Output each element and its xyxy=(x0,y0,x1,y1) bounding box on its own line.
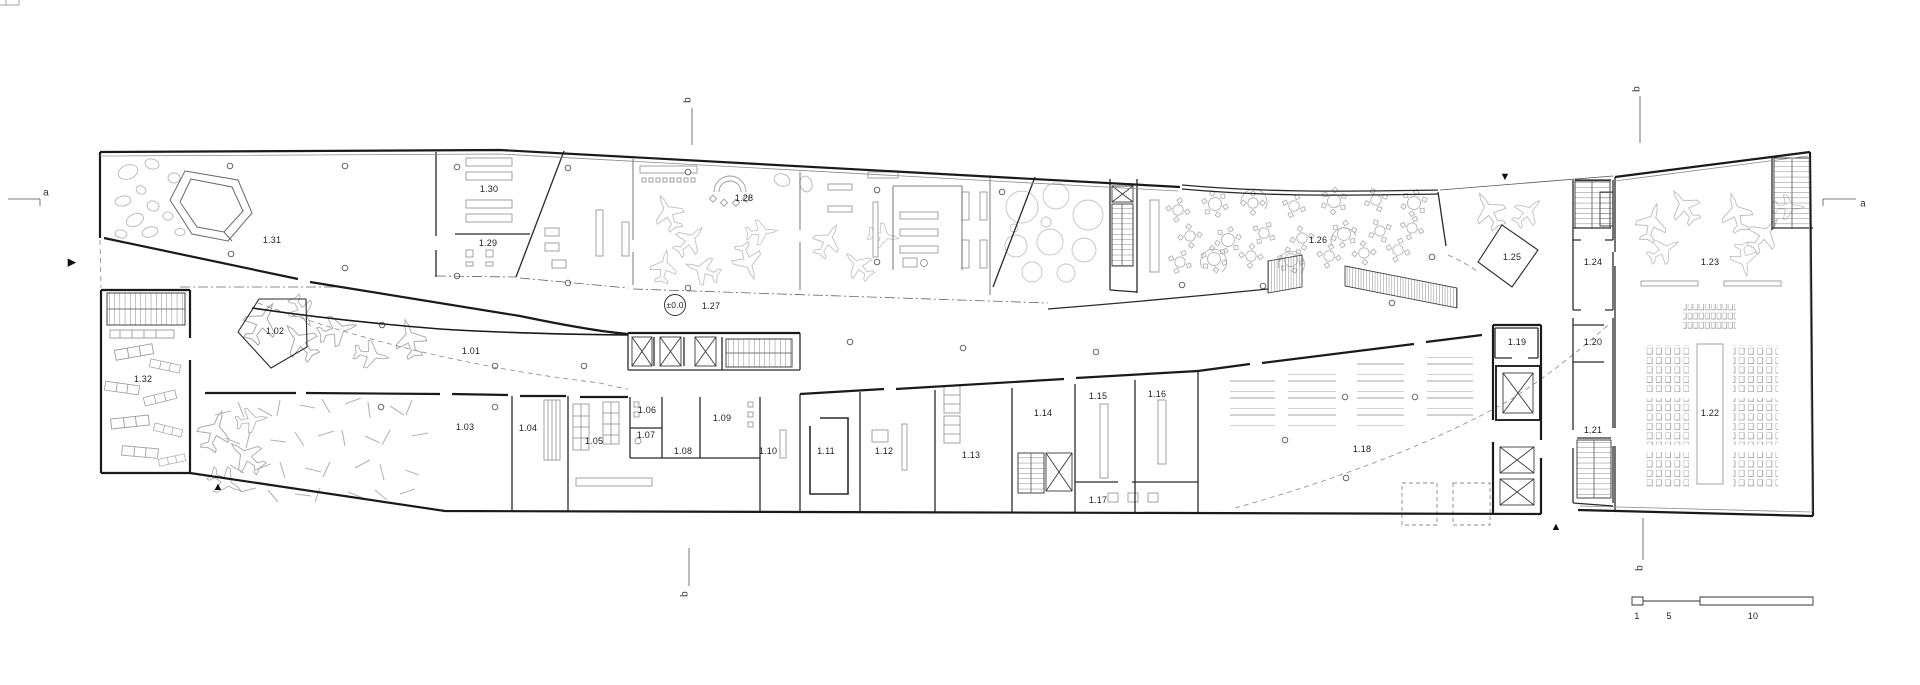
hexagon-exhibit xyxy=(170,171,252,241)
level-marker-circle xyxy=(665,295,686,316)
foyer-airplane-icons xyxy=(193,291,431,503)
scale-bar xyxy=(1632,597,1813,605)
diamond-room-1-25 xyxy=(1478,225,1538,287)
floor-plan-drawing xyxy=(0,0,1920,685)
angled-benches xyxy=(0,0,186,466)
outer-walls xyxy=(100,150,1813,516)
wall-inner-lines xyxy=(100,154,1812,512)
inner-room-1-11 xyxy=(810,418,848,494)
opening-lines xyxy=(180,276,1048,303)
dashed-zones xyxy=(1402,483,1490,525)
shelf-rows-1-18 xyxy=(1230,355,1473,428)
staircases xyxy=(107,158,1810,498)
floor-plan-page: ±0.0 1.011.021.031.041.051.061.071.081.0… xyxy=(0,0,1920,685)
rock-exhibit-blobs xyxy=(114,157,814,239)
tree-circle-garden xyxy=(1005,183,1103,282)
